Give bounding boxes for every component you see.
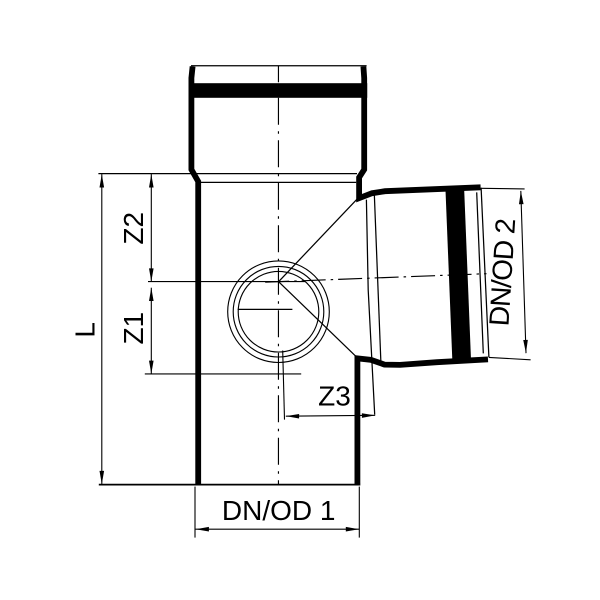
svg-text:Z2: Z2: [118, 212, 149, 245]
svg-text:DN/OD 1: DN/OD 1: [222, 495, 336, 526]
svg-text:Z1: Z1: [118, 312, 149, 345]
svg-text:Z3: Z3: [318, 381, 351, 412]
svg-text:L: L: [70, 322, 101, 338]
